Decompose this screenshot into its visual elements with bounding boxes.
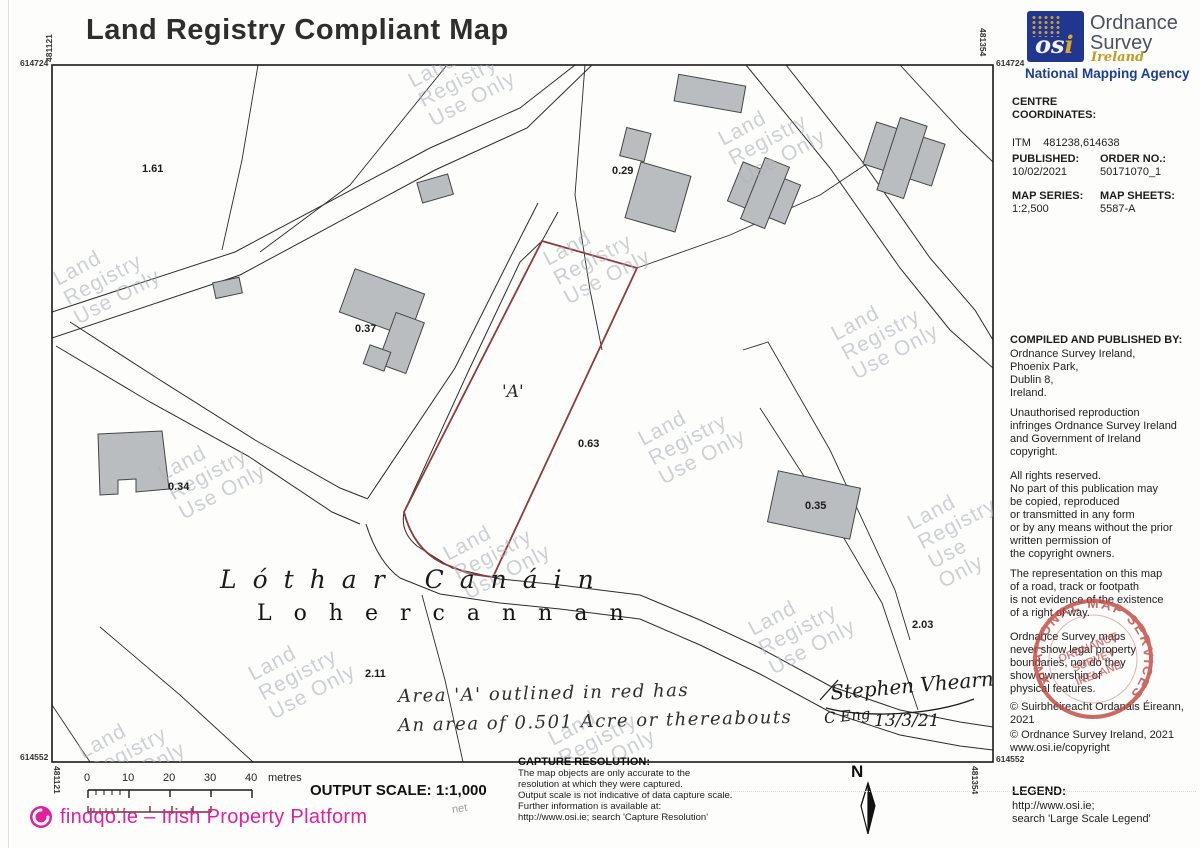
scan-artifact-dotted-line xyxy=(520,791,1196,792)
output-scale: OUTPUT SCALE: 1:1,000 xyxy=(310,782,487,799)
findqo-logo-icon xyxy=(30,806,52,828)
output-scale-label: OUTPUT SCALE: xyxy=(310,782,432,799)
land-registry-map-page: Land Registry Compliant Map osi Ordnance… xyxy=(0,0,1200,848)
scale-bar xyxy=(0,0,1200,848)
findqo-branding: findqo.ie – Irish Property Platform xyxy=(60,806,367,829)
north-label: N xyxy=(851,762,863,782)
capture-resolution-heading: CAPTURE RESOLUTION: xyxy=(518,756,650,768)
branding-suffix: net xyxy=(451,802,468,816)
capture-resolution-text: The map objects are only accurate to the… xyxy=(518,768,732,823)
output-scale-value: 1:1,000 xyxy=(436,782,487,799)
